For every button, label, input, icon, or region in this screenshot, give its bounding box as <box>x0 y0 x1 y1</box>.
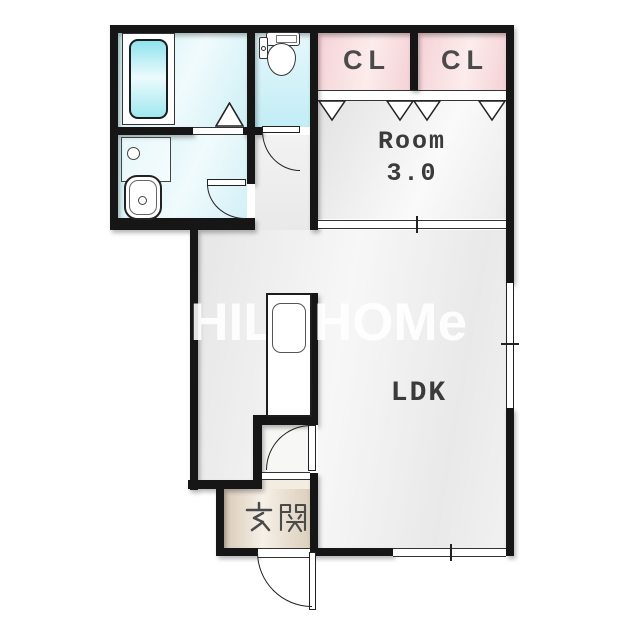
toilet-tank-lid <box>276 35 297 43</box>
kitchen-sink-icon <box>272 303 306 353</box>
genkan-label: 玄関 <box>245 501 309 533</box>
closet-fold-icon <box>386 100 414 122</box>
window-right <box>506 283 514 408</box>
closet-fold-icon <box>318 100 346 122</box>
hallroom-door-arc <box>266 425 311 470</box>
toilet-door-arc <box>262 131 300 171</box>
closet-left-label: CL <box>318 47 410 74</box>
floorplan: CHILDHOMe <box>0 0 640 640</box>
genkan-kanji-icon <box>245 501 309 533</box>
closet-fold-icon <box>413 100 441 122</box>
closet-fold-icon <box>478 100 506 122</box>
bedroom-size-label: 3.0 <box>318 161 506 186</box>
bedroom-name-label: Room <box>318 129 506 154</box>
entrance-door-arc <box>257 552 312 607</box>
toilet-bowl-icon <box>267 43 296 76</box>
toilet-panel-dot <box>261 46 266 51</box>
washing-machine-drain-icon <box>127 147 140 160</box>
bathroom-doorway <box>193 127 243 135</box>
hallroom-threshold <box>262 472 310 480</box>
washroom-doorway <box>247 184 255 218</box>
bath-folding-door-icon <box>215 102 244 127</box>
detail-layer: CL CL Room 3.0 LDK 玄関 <box>0 0 640 640</box>
window-right-tick <box>501 343 519 345</box>
sliding-door-bedroom <box>318 220 506 229</box>
washbasin-drain-icon <box>138 196 147 205</box>
ldk-label: LDK <box>382 380 456 408</box>
washroom-door-arc <box>207 184 245 219</box>
window-bottom-tick <box>450 544 452 561</box>
bathtub-icon <box>129 39 168 119</box>
sliding-door-tick <box>416 216 418 233</box>
closet-right-label: CL <box>418 47 506 74</box>
